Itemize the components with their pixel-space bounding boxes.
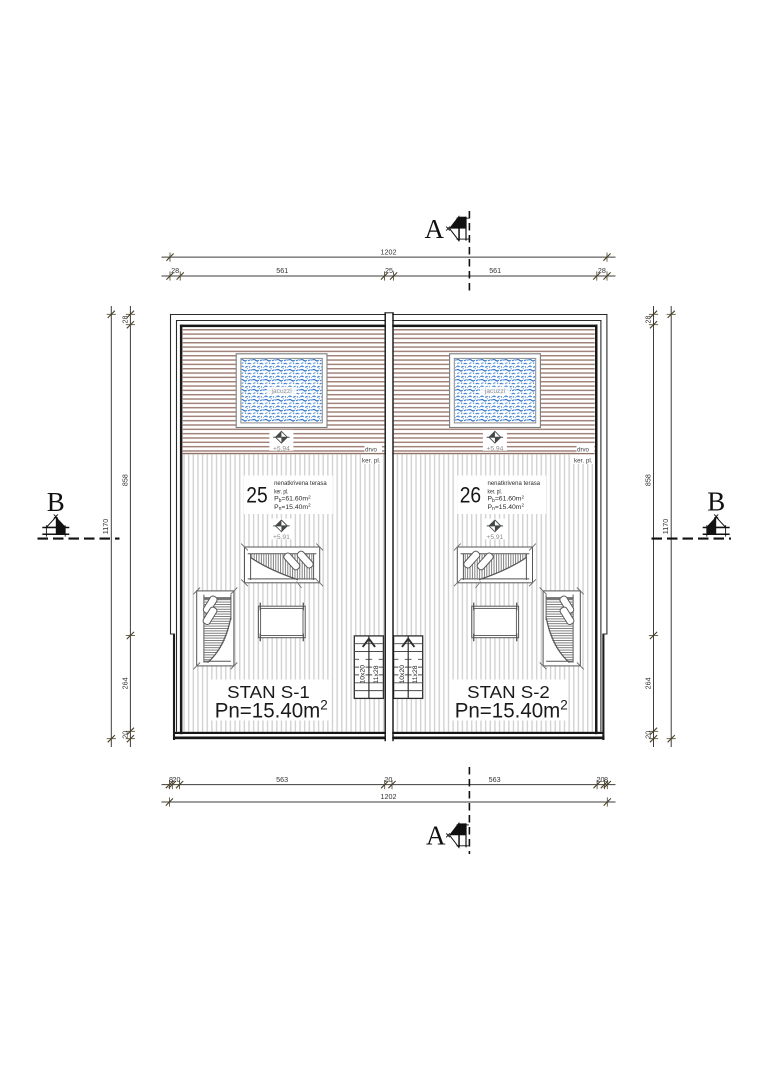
svg-text:25: 25 [246, 483, 267, 508]
svg-text:Pn=15.40m: Pn=15.40m [215, 700, 321, 723]
svg-text:264: 264 [120, 677, 129, 689]
svg-text:drvo: drvo [365, 446, 377, 453]
svg-text:1170: 1170 [101, 519, 110, 534]
svg-text:563: 563 [489, 775, 501, 784]
svg-text:8: 8 [604, 775, 608, 784]
svg-text:11x28: 11x28 [412, 665, 419, 683]
svg-text:28: 28 [643, 316, 652, 324]
svg-text:264: 264 [643, 677, 652, 689]
svg-text:25: 25 [385, 266, 393, 275]
svg-text:jacuzzi: jacuzzi [271, 388, 293, 395]
svg-text:858: 858 [120, 474, 129, 486]
svg-text:1202: 1202 [381, 247, 397, 256]
svg-text:561: 561 [276, 266, 288, 275]
svg-text:561: 561 [489, 266, 501, 275]
svg-text:11x28: 11x28 [373, 665, 380, 683]
svg-text:20: 20 [643, 731, 652, 739]
svg-text:nenatkrivena terasa: nenatkrivena terasa [488, 480, 541, 487]
svg-text:+5.91: +5.91 [273, 534, 290, 541]
svg-text:ker. pl.: ker. pl. [488, 489, 503, 496]
svg-text:26: 26 [460, 483, 481, 508]
svg-text:+5.91: +5.91 [486, 534, 503, 541]
svg-text:Pn=15.40m: Pn=15.40m [455, 700, 561, 723]
svg-text:858: 858 [643, 474, 652, 486]
svg-text:28: 28 [171, 266, 179, 275]
svg-text:1170: 1170 [661, 519, 670, 534]
svg-text:ker. pl.: ker. pl. [574, 458, 593, 465]
svg-text:A: A [425, 214, 445, 244]
svg-text:20: 20 [173, 775, 181, 784]
svg-text:10x20: 10x20 [360, 665, 367, 684]
svg-text:2: 2 [560, 698, 568, 713]
svg-text:1202: 1202 [381, 792, 397, 801]
svg-text:A: A [426, 821, 446, 851]
svg-text:20: 20 [120, 731, 129, 739]
svg-text:nenatkrivena terasa: nenatkrivena terasa [274, 480, 327, 487]
svg-text:2: 2 [320, 698, 328, 713]
svg-text:+5.94: +5.94 [486, 445, 503, 452]
svg-text:563: 563 [276, 775, 288, 784]
svg-text:B: B [707, 487, 725, 517]
svg-text:jacuzzi: jacuzzi [484, 388, 506, 395]
svg-text:drvo: drvo [577, 446, 589, 453]
svg-text:10x20: 10x20 [399, 665, 406, 684]
svg-text:28: 28 [598, 266, 606, 275]
svg-text:B: B [47, 487, 65, 517]
svg-text:28: 28 [120, 316, 129, 324]
svg-text:ker. pl.: ker. pl. [362, 458, 381, 465]
svg-text:+5.94: +5.94 [273, 445, 290, 452]
svg-text:20: 20 [384, 775, 392, 784]
svg-text:ker. pl.: ker. pl. [274, 489, 289, 496]
